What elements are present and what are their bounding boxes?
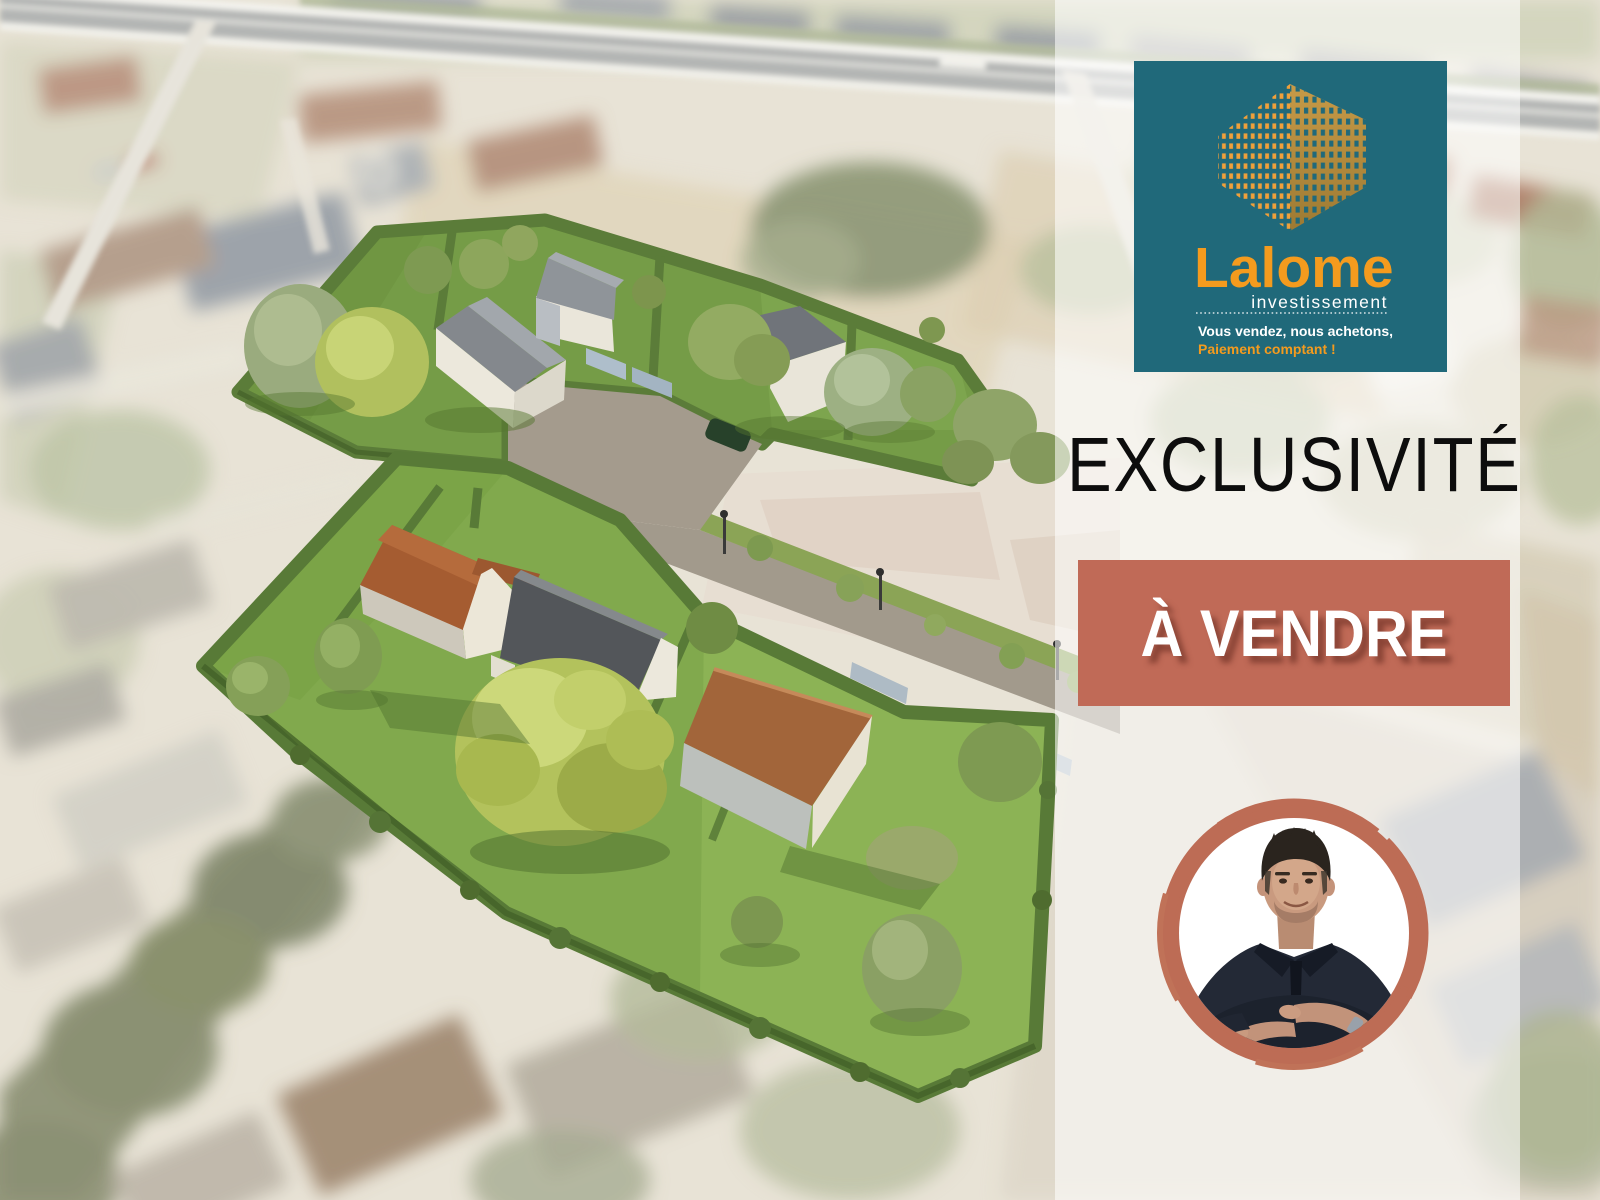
svg-text:Lalome: Lalome (1194, 236, 1394, 300)
svg-text:Paiement comptant !: Paiement comptant ! (1198, 341, 1336, 357)
svg-text:Vous vendez, nous achetons,: Vous vendez, nous achetons, (1198, 323, 1393, 339)
svg-text:investissement: investissement (1251, 292, 1388, 312)
